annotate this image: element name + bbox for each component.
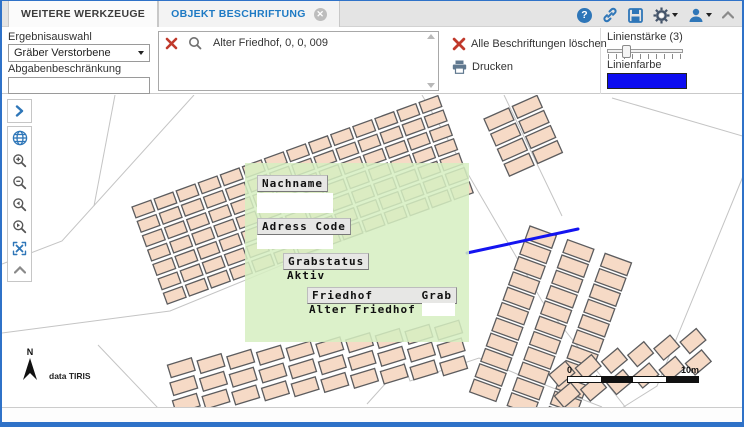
result-select-label: Ergebnisauswahl [8,31,150,43]
zoom-out-icon [12,175,27,190]
list-scrollbar[interactable] [424,32,438,90]
annotation-actions: Alle Beschriftungen löschen Drucken [452,34,607,80]
save-button[interactable] [628,8,643,23]
friedhof-grab-header: Friedhof Grab [307,287,457,304]
expand-panel-box [7,99,32,123]
result-listbox[interactable]: Alter Friedhof, 0, 0, 009 [158,31,439,91]
print-button[interactable]: Drucken [452,57,607,77]
scale-start-label: 0 [567,365,572,375]
collapse-nav-button[interactable] [8,259,31,281]
line-width-thumb[interactable] [622,45,631,58]
north-label: N [20,347,40,357]
status-bar [2,407,742,423]
collapse-toolbar-button[interactable] [722,11,734,19]
scale-end-label: 10m [681,365,699,375]
friedhof-label: Friedhof [312,289,373,302]
chevron-down-icon [138,51,144,55]
clear-annotations-button[interactable]: Alle Beschriftungen löschen [452,34,607,54]
red-x-icon [165,37,178,50]
chevron-down-icon [706,13,712,17]
user-menu-button[interactable] [688,7,712,23]
line-settings-panel: Linienstärke (3) Linienfarbe [600,28,744,94]
tab-label: OBJEKT BESCHRIFTUNG [171,8,306,20]
chevron-up-icon [14,266,26,274]
link-button[interactable] [602,7,618,23]
scale-bar-graphic [567,376,699,383]
clear-annotations-label: Alle Beschriftungen löschen [471,38,607,50]
grab-label: Grab [422,289,453,302]
magnifier-icon [188,36,202,50]
tab-weitere-werkzeuge[interactable]: WEITERE WERKZEUGE [8,1,158,27]
north-arrow-icon [21,357,39,381]
grab-field[interactable] [422,303,455,316]
nachname-label: Nachname [257,175,328,192]
line-width-label: Linienstärke (3) [607,31,744,43]
tab-objekt-beschriftung[interactable]: OBJEKT BESCHRIFTUNG ✕ [158,1,340,27]
adress-code-field[interactable] [257,235,333,249]
chevron-right-icon [15,105,24,117]
toolbar: Ergebnisauswahl Gräber Verstorbene Abgab… [2,28,742,94]
zoom-full-button[interactable] [8,237,31,259]
north-arrow: N [20,347,40,381]
line-width-slider[interactable] [607,45,683,59]
application-window: WEITERE WERKZEUGE OBJEKT BESCHRIFTUNG ✕ … [0,0,744,427]
save-icon [628,8,643,23]
user-icon [688,7,704,23]
remove-result-button[interactable] [159,33,183,53]
print-label: Drucken [472,61,513,73]
expand-panel-button[interactable] [8,100,31,122]
chevron-up-icon [722,11,734,19]
settings-menu-button[interactable] [653,7,678,24]
slider-track [607,49,683,53]
map-area: Nachname Adress Code Grabstatus Aktiv Fr… [2,95,742,407]
full-extent-button[interactable] [8,127,31,149]
tab-label: WEITERE WERKZEUGE [21,8,145,20]
zoom-in-button[interactable] [8,149,31,171]
grabstatus-value: Aktiv [287,269,325,282]
restriction-label: Abgabenbeschränkung [8,63,150,75]
zoom-previous-icon [12,197,27,212]
map-nav-toolbar [7,126,32,282]
next-extent-button[interactable] [8,215,31,237]
slider-ticks [608,54,682,59]
scroll-up-icon[interactable] [427,34,435,39]
nachname-field[interactable] [257,193,333,213]
scale-bar: 0 10m [567,365,699,383]
previous-extent-button[interactable] [8,193,31,215]
link-icon [602,7,618,23]
result-select-value: Gräber Verstorbene [14,47,111,59]
tab-close-icon[interactable]: ✕ [314,8,327,21]
expand-arrows-icon [12,241,27,256]
globe-icon [12,130,28,146]
zoom-out-button[interactable] [8,171,31,193]
chevron-down-icon [672,13,678,17]
result-selection-panel: Ergebnisauswahl Gräber Verstorbene Abgab… [8,31,150,94]
scroll-down-icon[interactable] [427,83,435,88]
feature-info-overlay: Nachname Adress Code Grabstatus Aktiv Fr… [245,163,469,342]
help-icon: ? [577,8,592,23]
friedhof-value: Alter Friedhof [309,303,416,316]
gear-icon [653,7,670,24]
restriction-input[interactable] [8,77,150,94]
result-select[interactable]: Gräber Verstorbene [8,44,150,62]
header-icon-bar: ? [577,5,734,25]
help-button[interactable]: ? [577,8,592,23]
result-item-text: Alter Friedhof, 0, 0, 009 [207,37,328,49]
line-color-swatch[interactable] [607,73,687,89]
list-item[interactable]: Alter Friedhof, 0, 0, 009 [159,32,438,54]
zoom-next-icon [12,219,27,234]
red-x-icon [452,37,466,51]
adress-code-label: Adress Code [257,218,351,235]
grabstatus-label: Grabstatus [283,253,369,270]
printer-icon [452,60,467,74]
line-color-label: Linienfarbe [607,59,744,71]
map-attribution: data TIRIS [49,371,91,381]
zoom-in-icon [12,153,27,168]
zoom-to-result-button[interactable] [183,33,207,53]
